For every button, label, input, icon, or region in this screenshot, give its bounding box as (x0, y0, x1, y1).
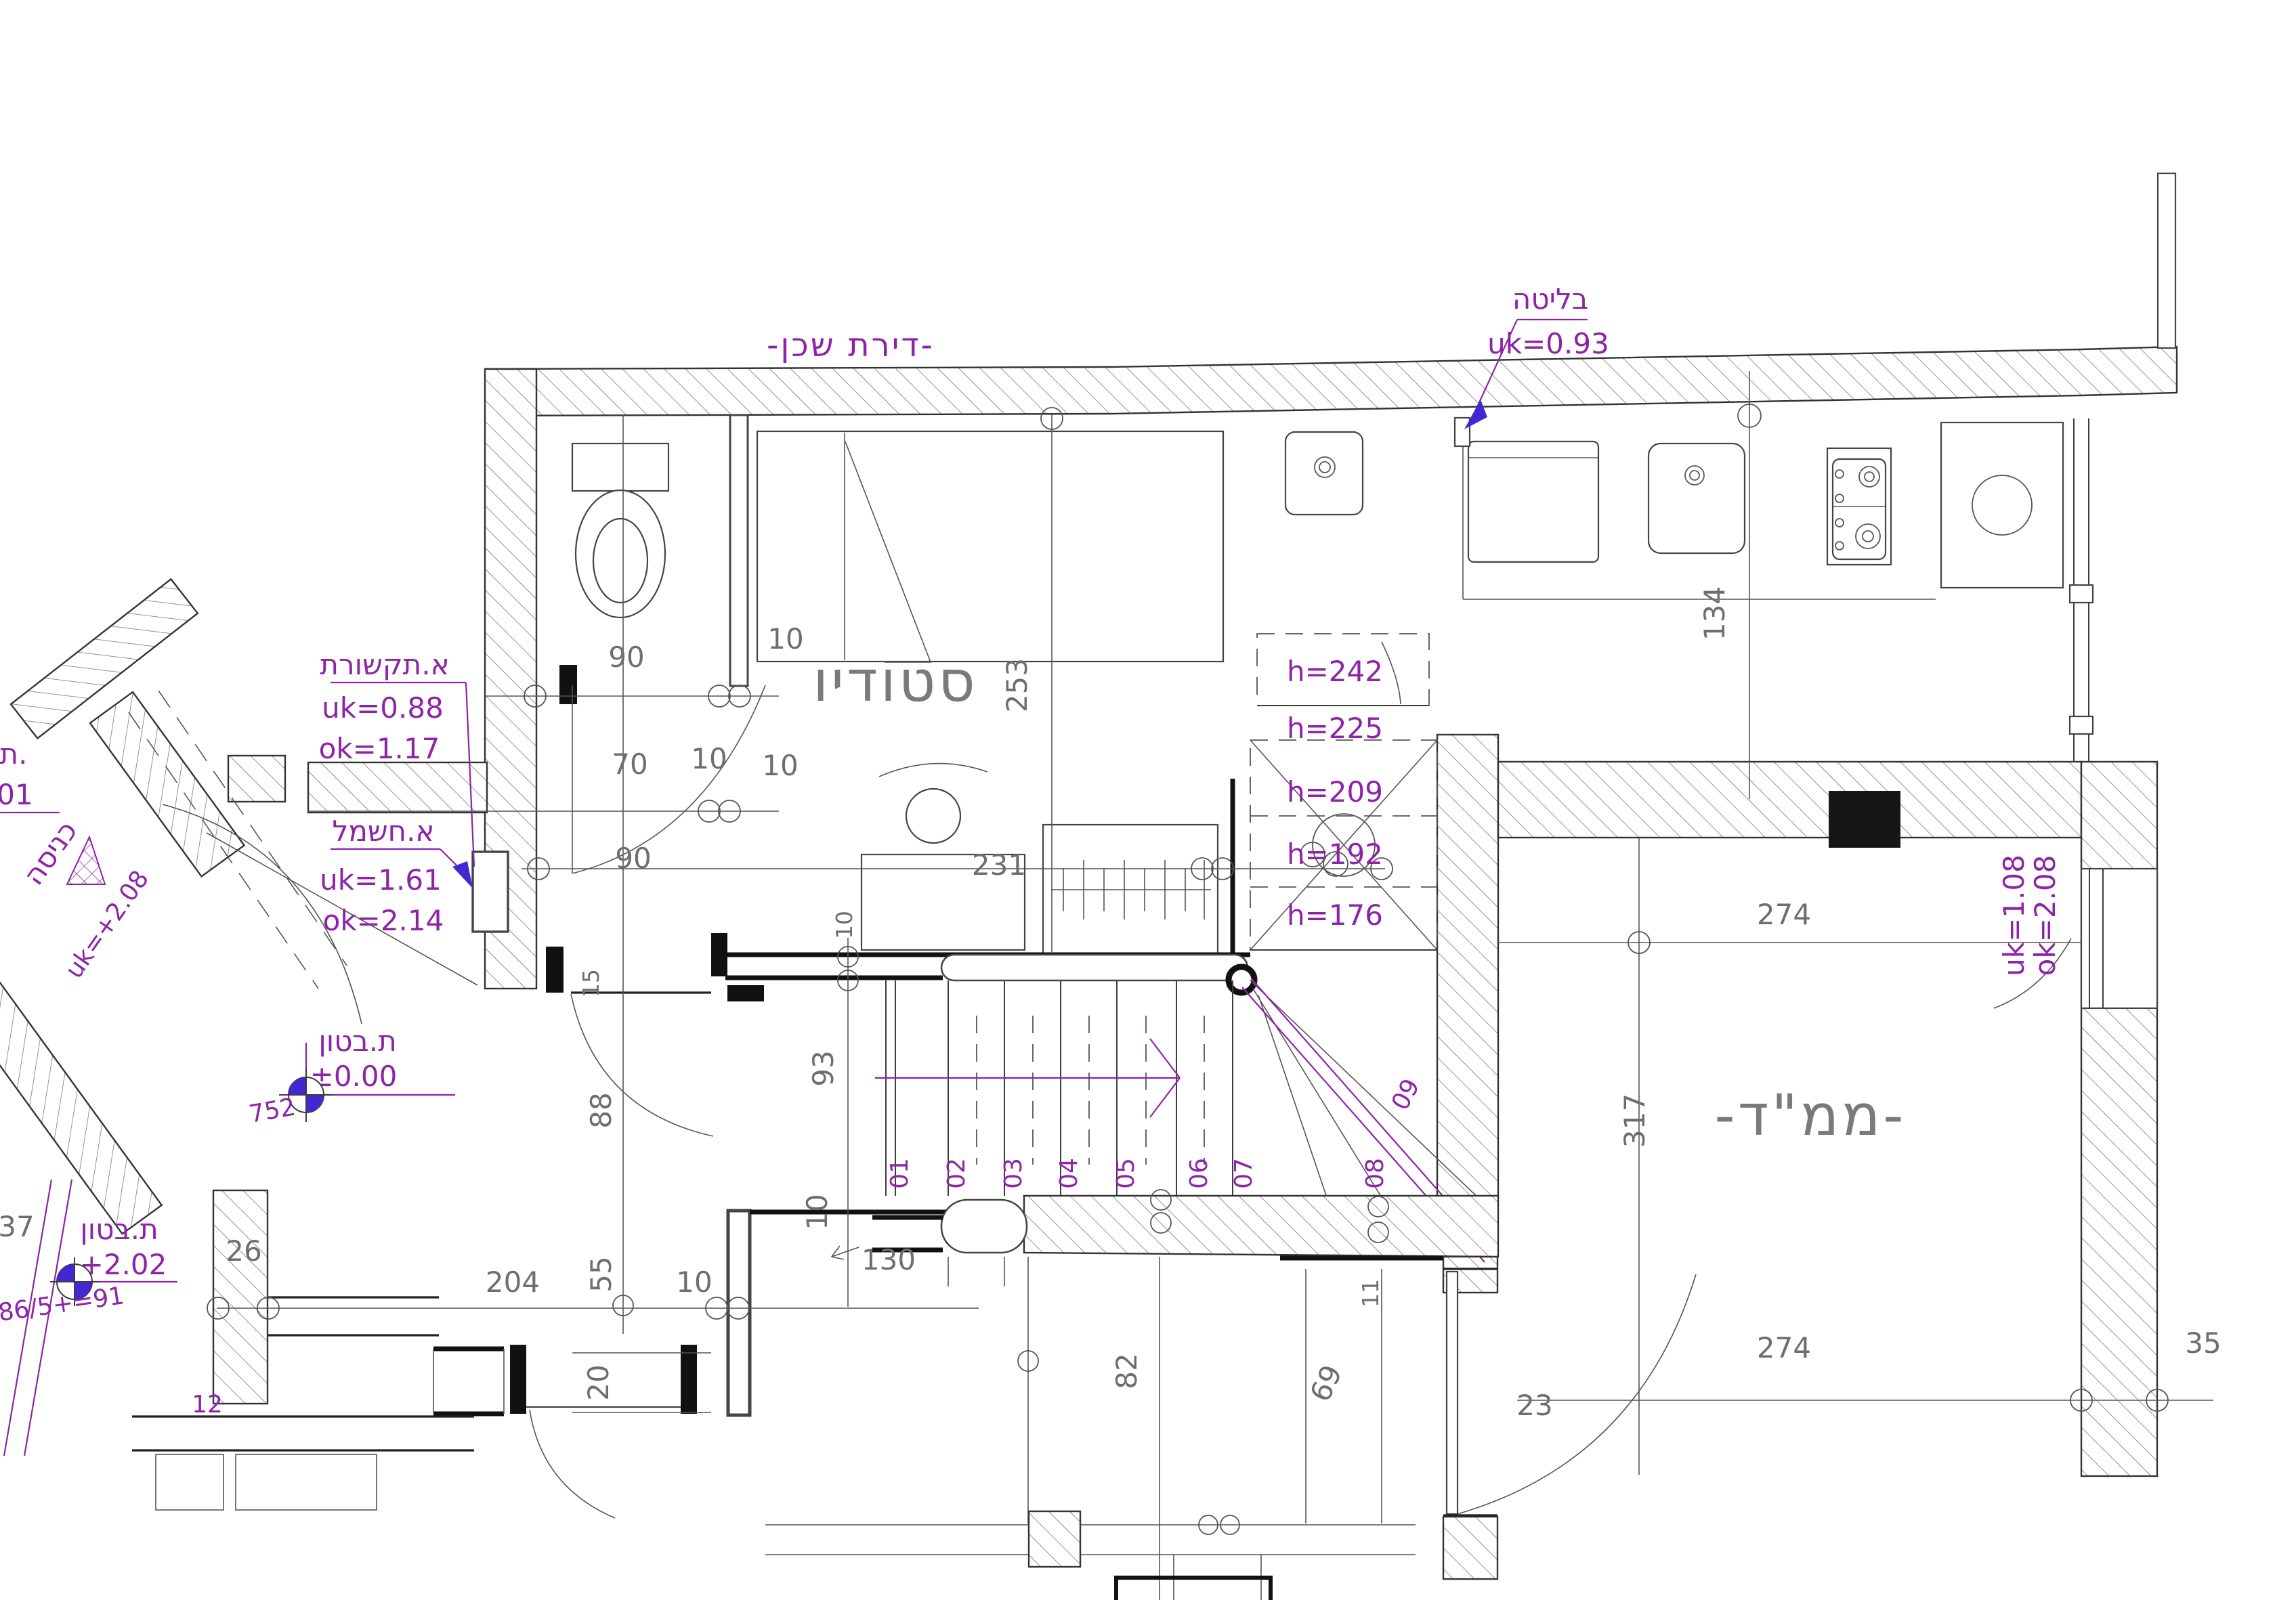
edge-01: 01 (0, 778, 33, 811)
chair-seat (906, 789, 960, 843)
dim-10-desk: 10 (831, 911, 857, 939)
annotation-entry: כניסה uk=+2.08 (16, 815, 154, 983)
window-ok: ok=2.08 (2028, 855, 2062, 976)
dim-204: 204 (486, 1266, 540, 1299)
mamad-wall-top (1498, 762, 2081, 838)
diag-wall-low (0, 970, 162, 1234)
bulge-label: בליטה (1512, 282, 1588, 316)
washing-machine (1941, 423, 2063, 588)
walk-line (875, 1039, 1180, 1117)
left-wall-jog (308, 762, 487, 813)
dim-26: 26 (226, 1234, 261, 1268)
concrete1-note: 752 (247, 1094, 298, 1129)
mamad-door-leaf (1447, 1272, 1458, 1514)
counter-step (1455, 418, 1470, 446)
bottom-left-wall (213, 1190, 268, 1404)
dim-10-stair: 10 (801, 1194, 834, 1230)
dim-11: 11 (1357, 1279, 1384, 1307)
dim-bed-length: 253 (1000, 658, 1034, 712)
room-label-studio: סטודיו (813, 648, 977, 714)
concrete1-value: ±0.00 (310, 1060, 398, 1093)
small-column (1029, 1511, 1080, 1567)
stair-07: 07 (1230, 1158, 1258, 1189)
dim-10: 10 (691, 742, 727, 775)
stair-08: 08 (1361, 1158, 1389, 1189)
floor-plan-canvas: 90 70 10 10 10 253 134 231 90 15 88 93 1… (0, 0, 2296, 1600)
plan-title: -דירת שכן- (767, 326, 935, 364)
dim-274-top: 274 (1757, 898, 1811, 931)
stair-09: 09 (1386, 1075, 1426, 1115)
lower-wall-stub (728, 1211, 750, 1415)
dim-130: 130 (862, 1243, 916, 1276)
handrail-end (941, 1200, 1027, 1253)
dim-arrow (832, 1246, 859, 1259)
stair-02: 02 (943, 1158, 971, 1189)
stair-section-band (1024, 1196, 1498, 1257)
stair-01: 01 (886, 1158, 914, 1189)
bathroom-door-arc (572, 685, 765, 873)
annotation-elec: א.חשמל uk=1.61 ok=2.14 (320, 815, 473, 937)
bed (757, 431, 1223, 662)
mamad-wall-left (1437, 735, 1498, 1197)
comm-ok: ok=1.17 (319, 732, 440, 765)
electrical-panel (473, 852, 508, 932)
height-242: h=242 (1287, 655, 1383, 688)
dim-82: 82 (1110, 1353, 1143, 1389)
dim-37: 37 (0, 1210, 35, 1243)
top-wall (486, 347, 2177, 416)
dim-hall-88: 88 (584, 1092, 618, 1128)
height-callouts: h=242 h=225 h=209 h=192 h=176 (1287, 655, 1383, 932)
dim-bath-width: 90 (608, 641, 644, 674)
dim-20: 20 (582, 1364, 615, 1400)
diag-wall-mid (90, 692, 245, 876)
dishwasher (1468, 441, 1598, 562)
elec-label: א.חשמל (332, 815, 434, 848)
stamp-box (1116, 1578, 1271, 1600)
window-uk: uk=1.08 (1997, 855, 2031, 976)
kitchen (1285, 418, 2093, 762)
dim-55: 55 (584, 1256, 618, 1292)
dim-15: 15 (578, 969, 604, 997)
stair-03: 03 (1000, 1158, 1027, 1189)
concrete2-label: ת.בטון (80, 1213, 158, 1246)
door-jamb (681, 1345, 697, 1414)
dim-23: 23 (1516, 1389, 1552, 1422)
door-jamb (559, 665, 577, 704)
floor-plan: 90 70 10 10 10 253 134 231 90 15 88 93 1… (0, 0, 2296, 1600)
stair-06: 06 (1185, 1158, 1213, 1189)
bathroom-partition (730, 415, 748, 686)
dim-317: 317 (1618, 1094, 1651, 1148)
height-209: h=209 (1287, 775, 1383, 808)
num-12: 12 (192, 1391, 223, 1419)
dim-10: 10 (762, 749, 798, 782)
dim-10-row: 10 (676, 1266, 712, 1299)
mamad-window-opening (2081, 869, 2157, 1008)
door-jamb (711, 933, 727, 976)
dim-bath-depth: 70 (612, 748, 647, 781)
height-176: h=176 (1287, 899, 1383, 932)
mamad-wall-left-low2 (1443, 1517, 1497, 1579)
dim-stair-93: 93 (807, 1050, 840, 1086)
dim-274-bottom: 274 (1757, 1331, 1811, 1364)
chair-back (879, 764, 987, 777)
height-192: h=192 (1287, 838, 1383, 871)
comm-label: א.תקשורת (320, 648, 449, 681)
comm-uk: uk=0.88 (322, 691, 444, 725)
top-right-pipe (2158, 173, 2175, 348)
diag-wall-chunk (228, 756, 285, 802)
elec-uk: uk=1.61 (320, 863, 442, 896)
toilet-tank (572, 444, 668, 491)
bathroom (559, 415, 765, 873)
stair-04: 04 (1055, 1158, 1083, 1189)
toilet-bowl-inner (593, 519, 647, 603)
concrete-column (1829, 791, 1900, 848)
concrete2-value: +2.02 (80, 1248, 167, 1281)
radiator-unit (1043, 825, 1218, 961)
door-jamb (727, 985, 764, 1001)
dim-10-bed: 10 (767, 622, 803, 655)
room-label-mamad: -ממ"ד- (1714, 1082, 1906, 1148)
door-jamb (546, 947, 564, 993)
mamad-door-arc (1458, 1274, 1696, 1514)
door-jamb (510, 1345, 526, 1414)
stair-05: 05 (1112, 1158, 1140, 1189)
door-arc (530, 1410, 615, 1518)
kitchen-sink-small (1285, 432, 1363, 515)
dim-door-width: 90 (615, 842, 651, 875)
dim-69: 69 (1303, 1360, 1348, 1406)
dim-desk: 231 (972, 848, 1026, 882)
dim-kitchen-depth: 134 (1698, 586, 1731, 641)
dim-35: 35 (2185, 1326, 2221, 1360)
annotation-mamad-window: uk=1.08 ok=2.08 (1997, 855, 2062, 976)
railing (941, 955, 1248, 980)
edge-t: ת. (0, 737, 27, 771)
concrete1-label: ת.בטון (318, 1024, 396, 1058)
annotation-concrete-zero: ת.בטון ±0.00 752 (247, 1024, 455, 1129)
stair-numbers: 01 02 03 04 05 06 07 08 09 (886, 1075, 1426, 1189)
height-225: h=225 (1287, 712, 1383, 745)
kitchen-sink-main (1649, 444, 1745, 553)
elec-ok: ok=2.14 (323, 904, 444, 937)
